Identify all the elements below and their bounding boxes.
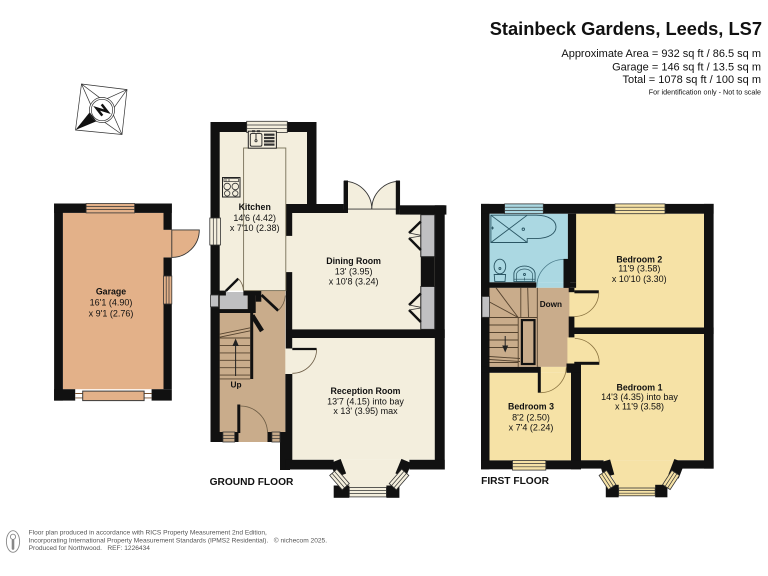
svg-text:Produced for Northwood. REF:: Produced for Northwood. REF: 1226434 <box>29 545 151 552</box>
svg-text:Approximate Area = 932 sq ft /: Approximate Area = 932 sq ft / 86.5 sq m <box>561 48 761 60</box>
svg-text:x 13' (3.95) max: x 13' (3.95) max <box>333 406 398 416</box>
svg-text:x 11'9 (3.58): x 11'9 (3.58) <box>615 402 664 412</box>
svg-text:13'7 (4.15) into bay: 13'7 (4.15) into bay <box>327 396 404 406</box>
svg-text:14'6 (4.42): 14'6 (4.42) <box>233 213 276 223</box>
svg-text:x 9'1 (2.76): x 9'1 (2.76) <box>89 309 134 319</box>
svg-text:14'3 (4.35) into bay: 14'3 (4.35) into bay <box>601 392 678 402</box>
svg-text:Garage: Garage <box>96 287 126 297</box>
svg-text:For identification only - Not: For identification only - Not to scale <box>649 87 761 96</box>
svg-text:Up: Up <box>230 380 241 390</box>
svg-text:Bedroom 1: Bedroom 1 <box>617 382 663 392</box>
svg-text:16'1 (4.90): 16'1 (4.90) <box>90 298 133 308</box>
svg-text:8'2 (2.50): 8'2 (2.50) <box>512 412 550 422</box>
svg-text:Kitchen: Kitchen <box>239 202 271 212</box>
svg-text:13' (3.95): 13' (3.95) <box>335 267 373 277</box>
svg-text:GROUND FLOOR: GROUND FLOOR <box>210 477 294 488</box>
svg-text:Total = 1078 sq ft / 100 sq m: Total = 1078 sq ft / 100 sq m <box>623 74 762 86</box>
svg-text:Bedroom 3: Bedroom 3 <box>508 402 554 412</box>
svg-text:Incorporating International Pr: Incorporating International Property Mea… <box>29 536 328 544</box>
svg-text:Reception Room: Reception Room <box>331 386 401 396</box>
svg-text:x 10'8 (3.24): x 10'8 (3.24) <box>329 276 379 286</box>
svg-text:Stainbeck Gardens, Leeds, LS7: Stainbeck Gardens, Leeds, LS7 <box>490 18 762 39</box>
svg-text:x 7'4 (2.24): x 7'4 (2.24) <box>509 422 554 432</box>
svg-text:x 7'10 (2.38): x 7'10 (2.38) <box>230 223 280 233</box>
svg-text:Dining Room: Dining Room <box>326 256 381 266</box>
svg-text:Down: Down <box>540 300 562 309</box>
svg-text:FIRST FLOOR: FIRST FLOOR <box>481 476 550 487</box>
svg-text:11'9 (3.58): 11'9 (3.58) <box>618 264 660 274</box>
svg-text:Floor plan produced in accorda: Floor plan produced in accordance with R… <box>29 530 267 537</box>
svg-text:x 10'10 (3.30): x 10'10 (3.30) <box>612 274 667 284</box>
svg-text:Garage = 146 sq ft / 13.5 sq m: Garage = 146 sq ft / 13.5 sq m <box>612 62 761 74</box>
